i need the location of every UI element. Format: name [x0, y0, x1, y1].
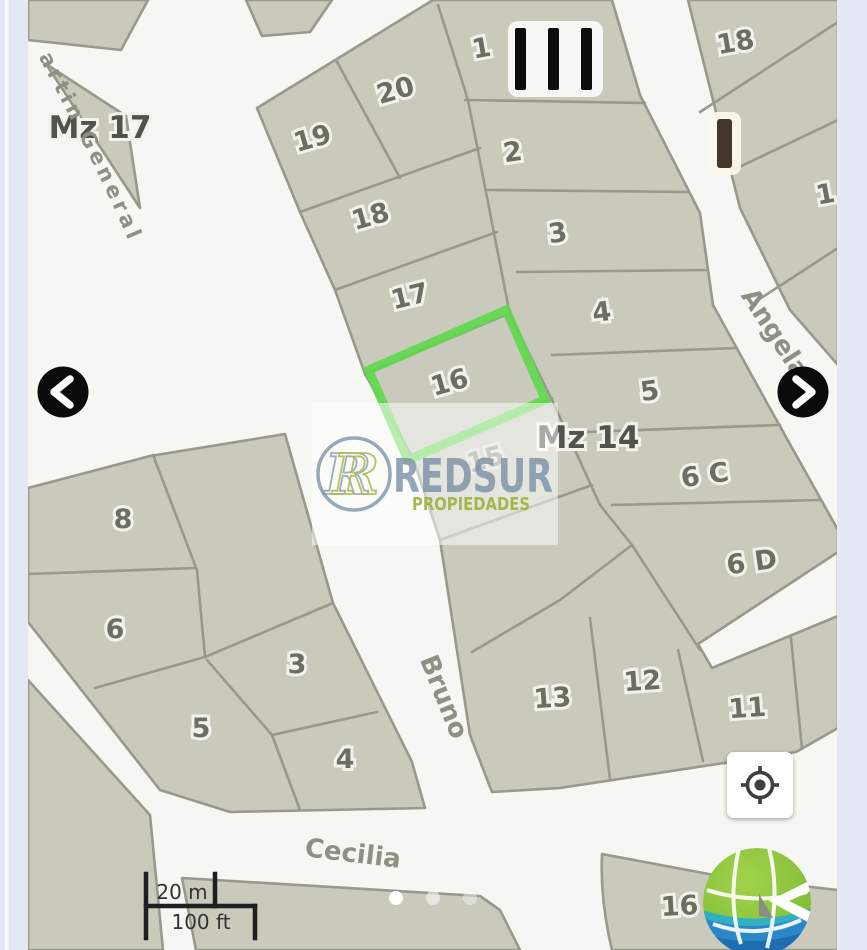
- parcel-number-5: 5: [192, 713, 211, 744]
- scale-imperial-label: 100 ft: [171, 910, 230, 934]
- parcel-number-8: 8: [114, 504, 133, 535]
- parcel-number-13: 13: [533, 682, 573, 716]
- carousel-dot-3[interactable]: [463, 891, 477, 905]
- left-strip-white-line: [5, 0, 9, 950]
- watermark-tagline: PROPIEDADES: [412, 494, 530, 515]
- parcel-number-16: 16: [660, 890, 699, 923]
- carousel-dot-2[interactable]: [426, 891, 440, 905]
- prev-photo-button[interactable]: [38, 367, 89, 418]
- parcel-number-11: 11: [728, 692, 768, 726]
- bar-marker-1: [515, 28, 526, 90]
- next-photo-button[interactable]: [778, 367, 829, 418]
- listing-photo-viewer: 123456 C6 D2019181716151312111818653416 …: [0, 0, 867, 950]
- scale-metric-label: 20 m: [156, 880, 207, 904]
- carousel-dot-1[interactable]: [389, 891, 403, 905]
- locate-button[interactable]: [727, 752, 793, 818]
- bar-marker-3: [581, 28, 592, 90]
- left-side-strip: [0, 0, 28, 950]
- watermark: R R REDSUR PROPIEDADES: [318, 438, 553, 515]
- bar-marker-2: [548, 28, 559, 90]
- bar-marker-single: [717, 119, 732, 168]
- parcel-number-6: 6: [106, 614, 125, 645]
- parcel-map: 123456 C6 D2019181716151312111818653416 …: [0, 0, 867, 950]
- parcel-number-4: 4: [336, 744, 355, 775]
- watermark-monogram-green: R: [331, 442, 380, 508]
- parcel-number-12: 12: [623, 665, 663, 699]
- parcel-number-3: 3: [288, 649, 307, 680]
- parcel-number-6C: 6 C: [679, 457, 731, 494]
- parcel-number-18: 18: [714, 24, 756, 61]
- right-side-strip: [837, 0, 867, 950]
